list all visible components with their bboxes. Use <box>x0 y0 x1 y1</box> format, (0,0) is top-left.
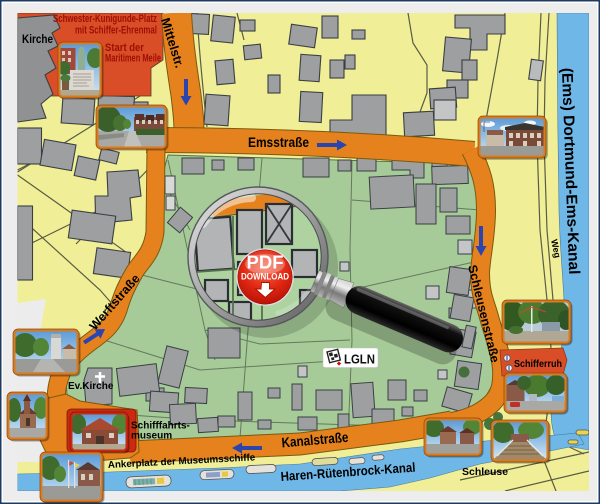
svg-text:Kirche: Kirche <box>22 34 53 46</box>
svg-text:museum: museum <box>131 431 172 442</box>
svg-text:Maritimen Meile: Maritimen Meile <box>105 53 161 65</box>
svg-text:DOWNLOAD: DOWNLOAD <box>241 272 289 282</box>
svg-text:Ev.Kirche: Ev.Kirche <box>68 381 114 392</box>
svg-text:Schifferruh: Schifferruh <box>514 358 562 370</box>
svg-text:PDF: PDF <box>247 253 284 273</box>
svg-text:Emsstraße: Emsstraße <box>248 134 309 150</box>
svg-text:Schwester-Kunigunde-Platz: Schwester-Kunigunde-Platz <box>53 13 157 25</box>
svg-text:mit Schiffer-Ehrenmal: mit Schiffer-Ehrenmal <box>75 25 157 37</box>
svg-text:Schleuse: Schleuse <box>462 466 508 478</box>
svg-text:LGLN: LGLN <box>344 353 375 367</box>
